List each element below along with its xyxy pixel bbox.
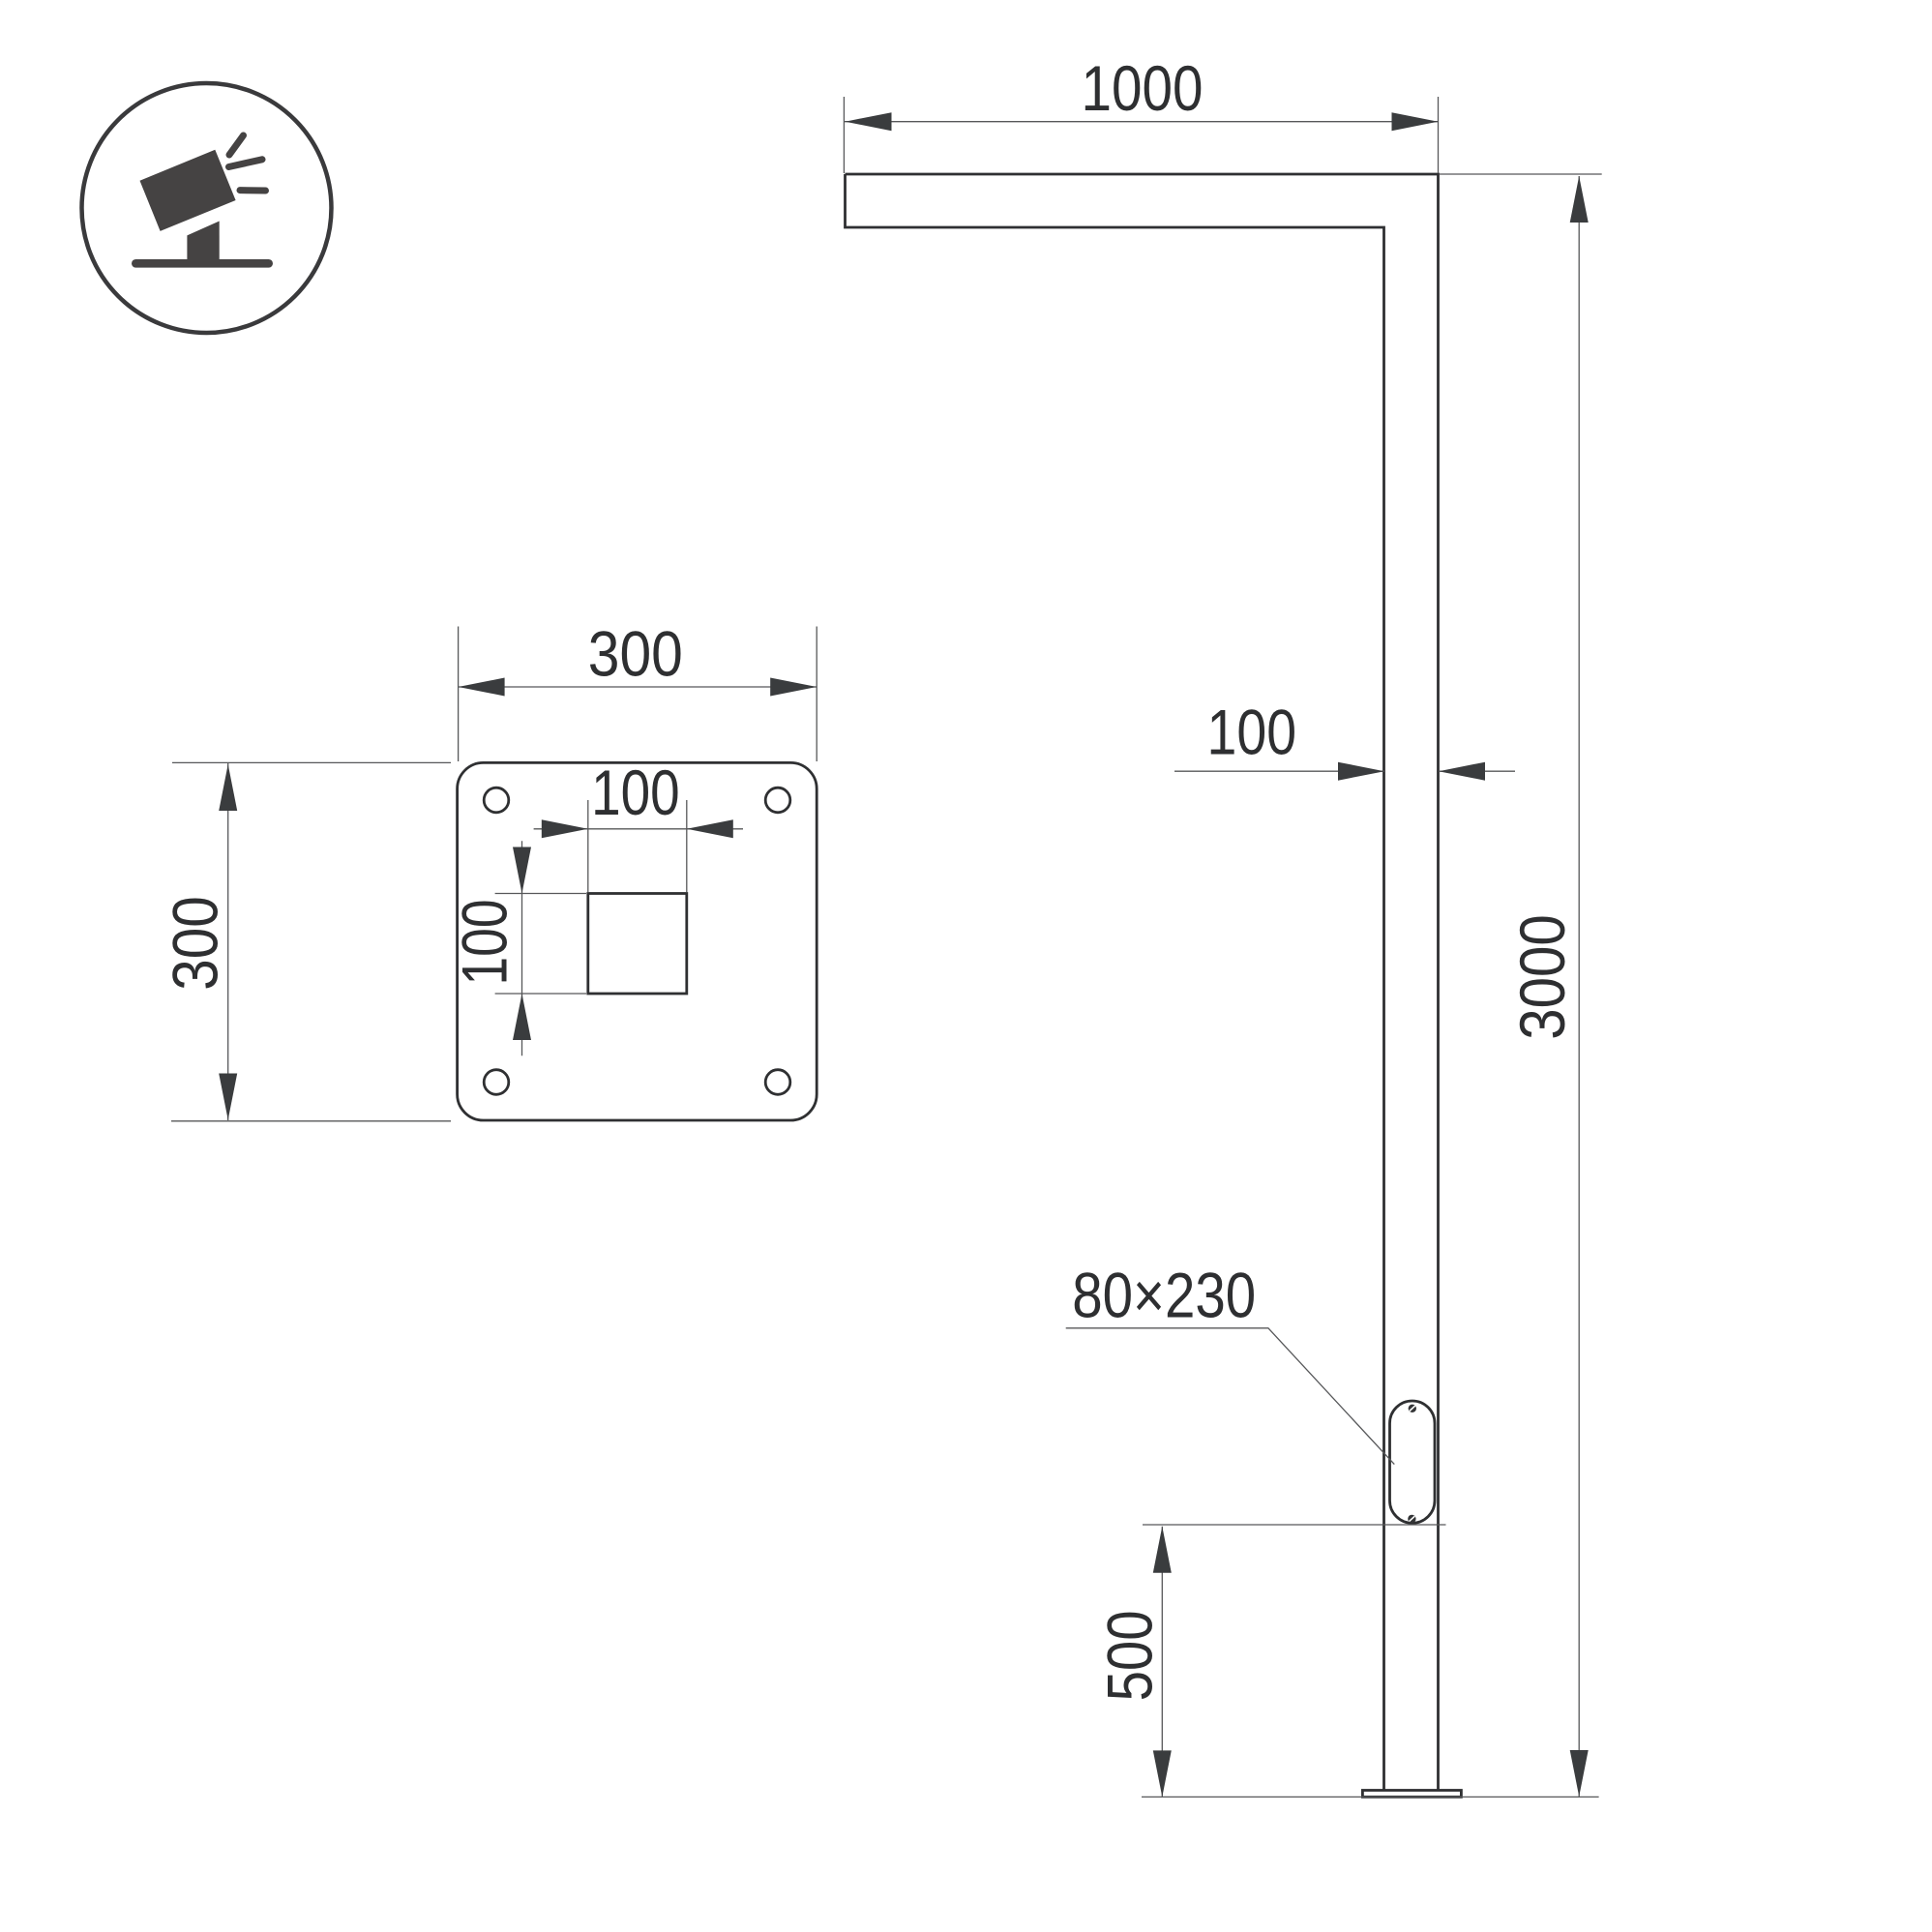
svg-text:300: 300 — [588, 617, 683, 689]
svg-text:3000: 3000 — [1506, 914, 1578, 1040]
svg-text:80×230: 80×230 — [1072, 1259, 1256, 1330]
svg-text:100: 100 — [1207, 697, 1297, 768]
svg-text:100: 100 — [449, 900, 520, 986]
svg-text:500: 500 — [1093, 1610, 1165, 1701]
svg-text:100: 100 — [591, 757, 680, 828]
svg-text:1000: 1000 — [1082, 52, 1204, 124]
svg-text:300: 300 — [160, 896, 231, 991]
